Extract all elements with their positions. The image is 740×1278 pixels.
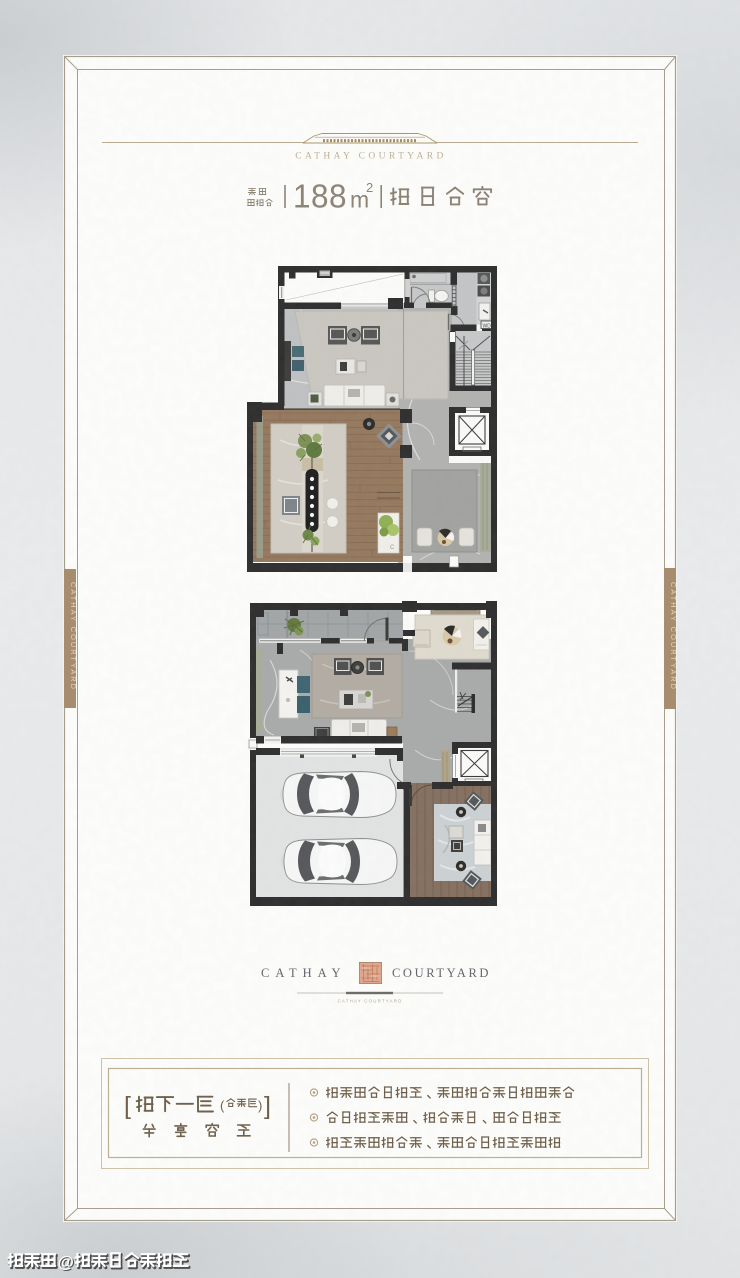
svg-text:@: @ — [58, 1253, 74, 1271]
